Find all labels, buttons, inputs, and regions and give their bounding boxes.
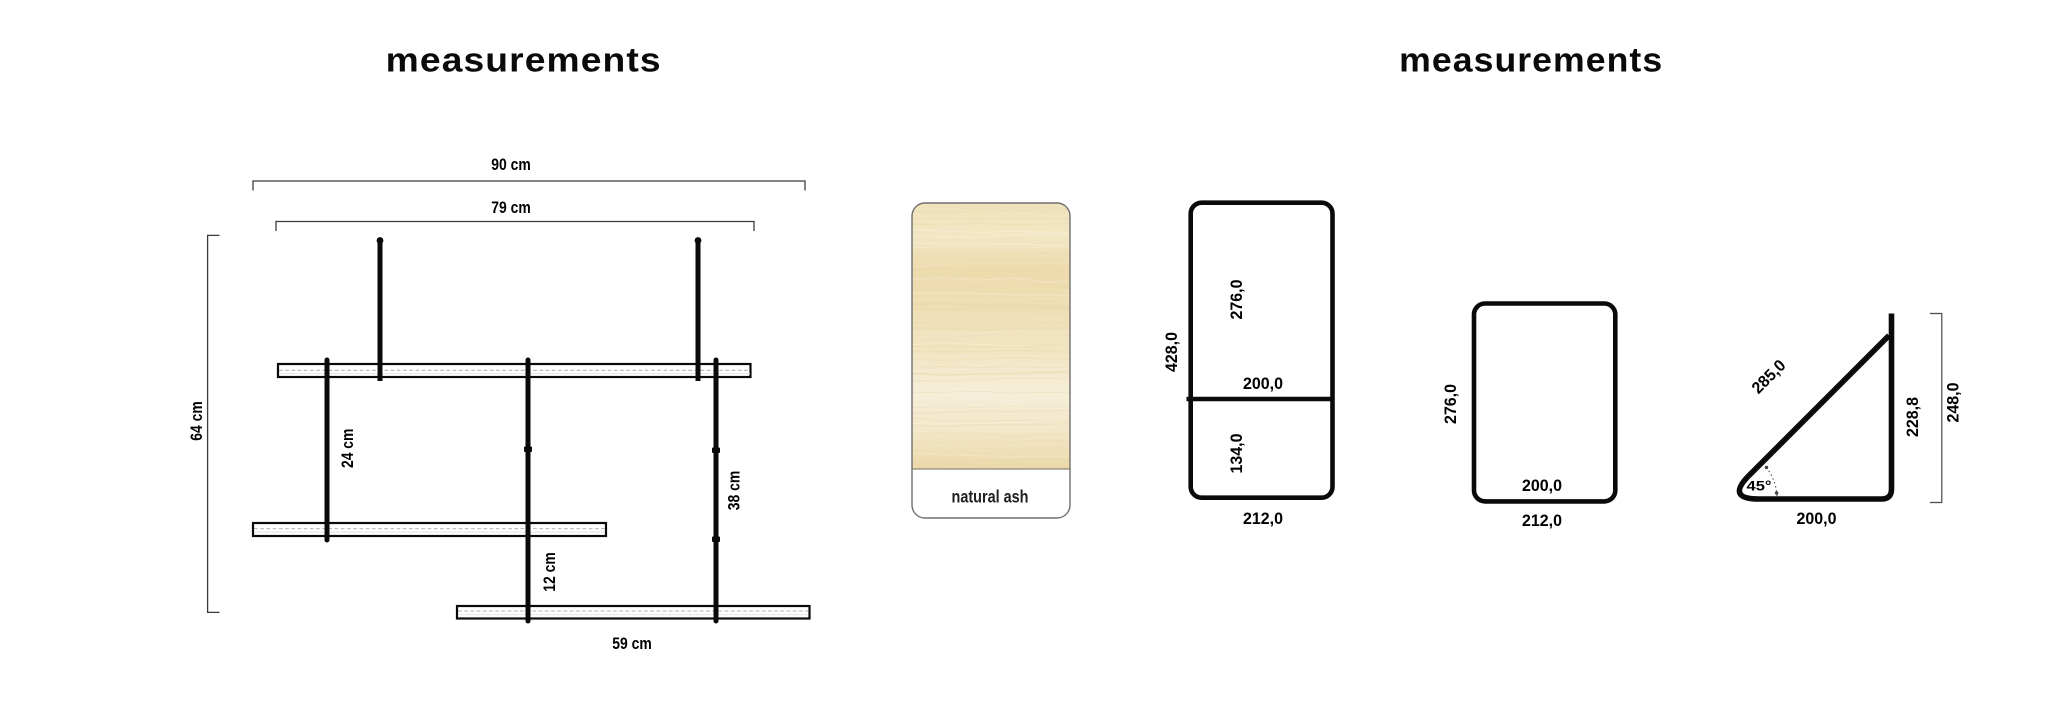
svg-text:measurements: measurements — [1399, 42, 1663, 80]
svg-text:90 cm: 90 cm — [491, 156, 531, 174]
svg-text:38 cm: 38 cm — [726, 471, 744, 511]
svg-text:248,0: 248,0 — [1945, 383, 1963, 423]
svg-text:134,0: 134,0 — [1228, 434, 1246, 474]
svg-text:45°: 45° — [1747, 479, 1772, 494]
svg-text:12 cm: 12 cm — [541, 552, 559, 592]
svg-text:59 cm: 59 cm — [612, 635, 652, 653]
svg-text:200,0: 200,0 — [1797, 510, 1837, 528]
svg-text:428,0: 428,0 — [1163, 332, 1181, 372]
svg-text:200,0: 200,0 — [1243, 375, 1283, 393]
svg-text:276,0: 276,0 — [1442, 384, 1460, 424]
svg-text:79 cm: 79 cm — [491, 199, 531, 217]
svg-text:24 cm: 24 cm — [339, 429, 357, 469]
svg-text:measurements: measurements — [386, 42, 662, 80]
svg-text:212,0: 212,0 — [1522, 512, 1562, 530]
svg-text:natural ash: natural ash — [952, 487, 1029, 507]
svg-text:64 cm: 64 cm — [188, 401, 206, 441]
svg-text:276,0: 276,0 — [1228, 280, 1246, 320]
svg-text:200,0: 200,0 — [1522, 477, 1562, 495]
svg-text:228,8: 228,8 — [1904, 397, 1922, 437]
svg-text:212,0: 212,0 — [1243, 510, 1283, 528]
